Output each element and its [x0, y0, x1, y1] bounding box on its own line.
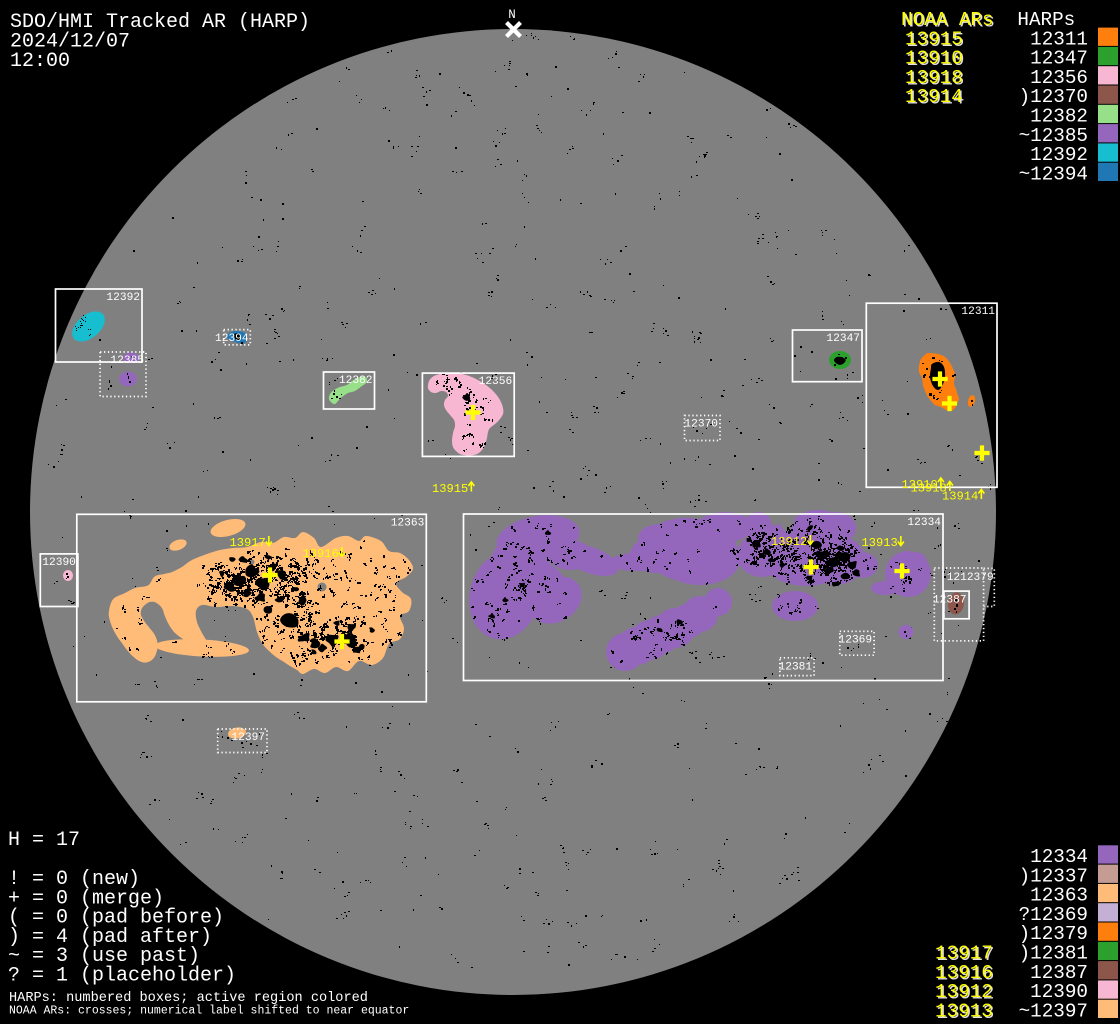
- svg-text:12382: 12382: [339, 375, 373, 387]
- svg-text:1212379: 1212379: [947, 572, 994, 584]
- svg-text:12:00: 12:00: [10, 50, 70, 73]
- svg-text:12370: 12370: [684, 419, 718, 431]
- svg-text:13913: 13913: [862, 536, 898, 550]
- svg-text:12392: 12392: [106, 292, 140, 304]
- svg-text:~12394: ~12394: [1019, 163, 1088, 185]
- svg-text:12363: 12363: [391, 517, 425, 529]
- svg-text:12356: 12356: [479, 376, 513, 388]
- svg-text:12381: 12381: [779, 662, 813, 674]
- svg-text:N: N: [508, 8, 516, 22]
- svg-text:12369: 12369: [839, 634, 873, 646]
- svg-text:12311: 12311: [961, 306, 995, 318]
- svg-text:13914: 13914: [942, 490, 978, 504]
- svg-text:13912: 13912: [771, 535, 807, 549]
- svg-text:13917: 13917: [230, 536, 266, 550]
- svg-text:12385: 12385: [110, 355, 144, 367]
- svg-text:12347: 12347: [826, 333, 860, 345]
- svg-text:13916: 13916: [303, 547, 339, 561]
- svg-text:12394: 12394: [215, 333, 249, 345]
- svg-text:12390: 12390: [42, 557, 76, 569]
- svg-text:~12397: ~12397: [1019, 1000, 1088, 1022]
- svg-text:13915: 13915: [432, 482, 468, 496]
- svg-text:12387: 12387: [933, 594, 967, 606]
- svg-text:? = 1 (placeholder): ? = 1 (placeholder): [8, 965, 236, 988]
- svg-text:NOAA ARs: crosses; numerical l: NOAA ARs: crosses; numerical label shift…: [9, 1005, 409, 1018]
- svg-text:13914: 13914: [905, 86, 963, 108]
- svg-text:H = 17: H = 17: [8, 829, 80, 852]
- svg-text:12334: 12334: [907, 517, 941, 529]
- svg-text:12397: 12397: [231, 732, 265, 744]
- svg-text:13913: 13913: [935, 1000, 993, 1022]
